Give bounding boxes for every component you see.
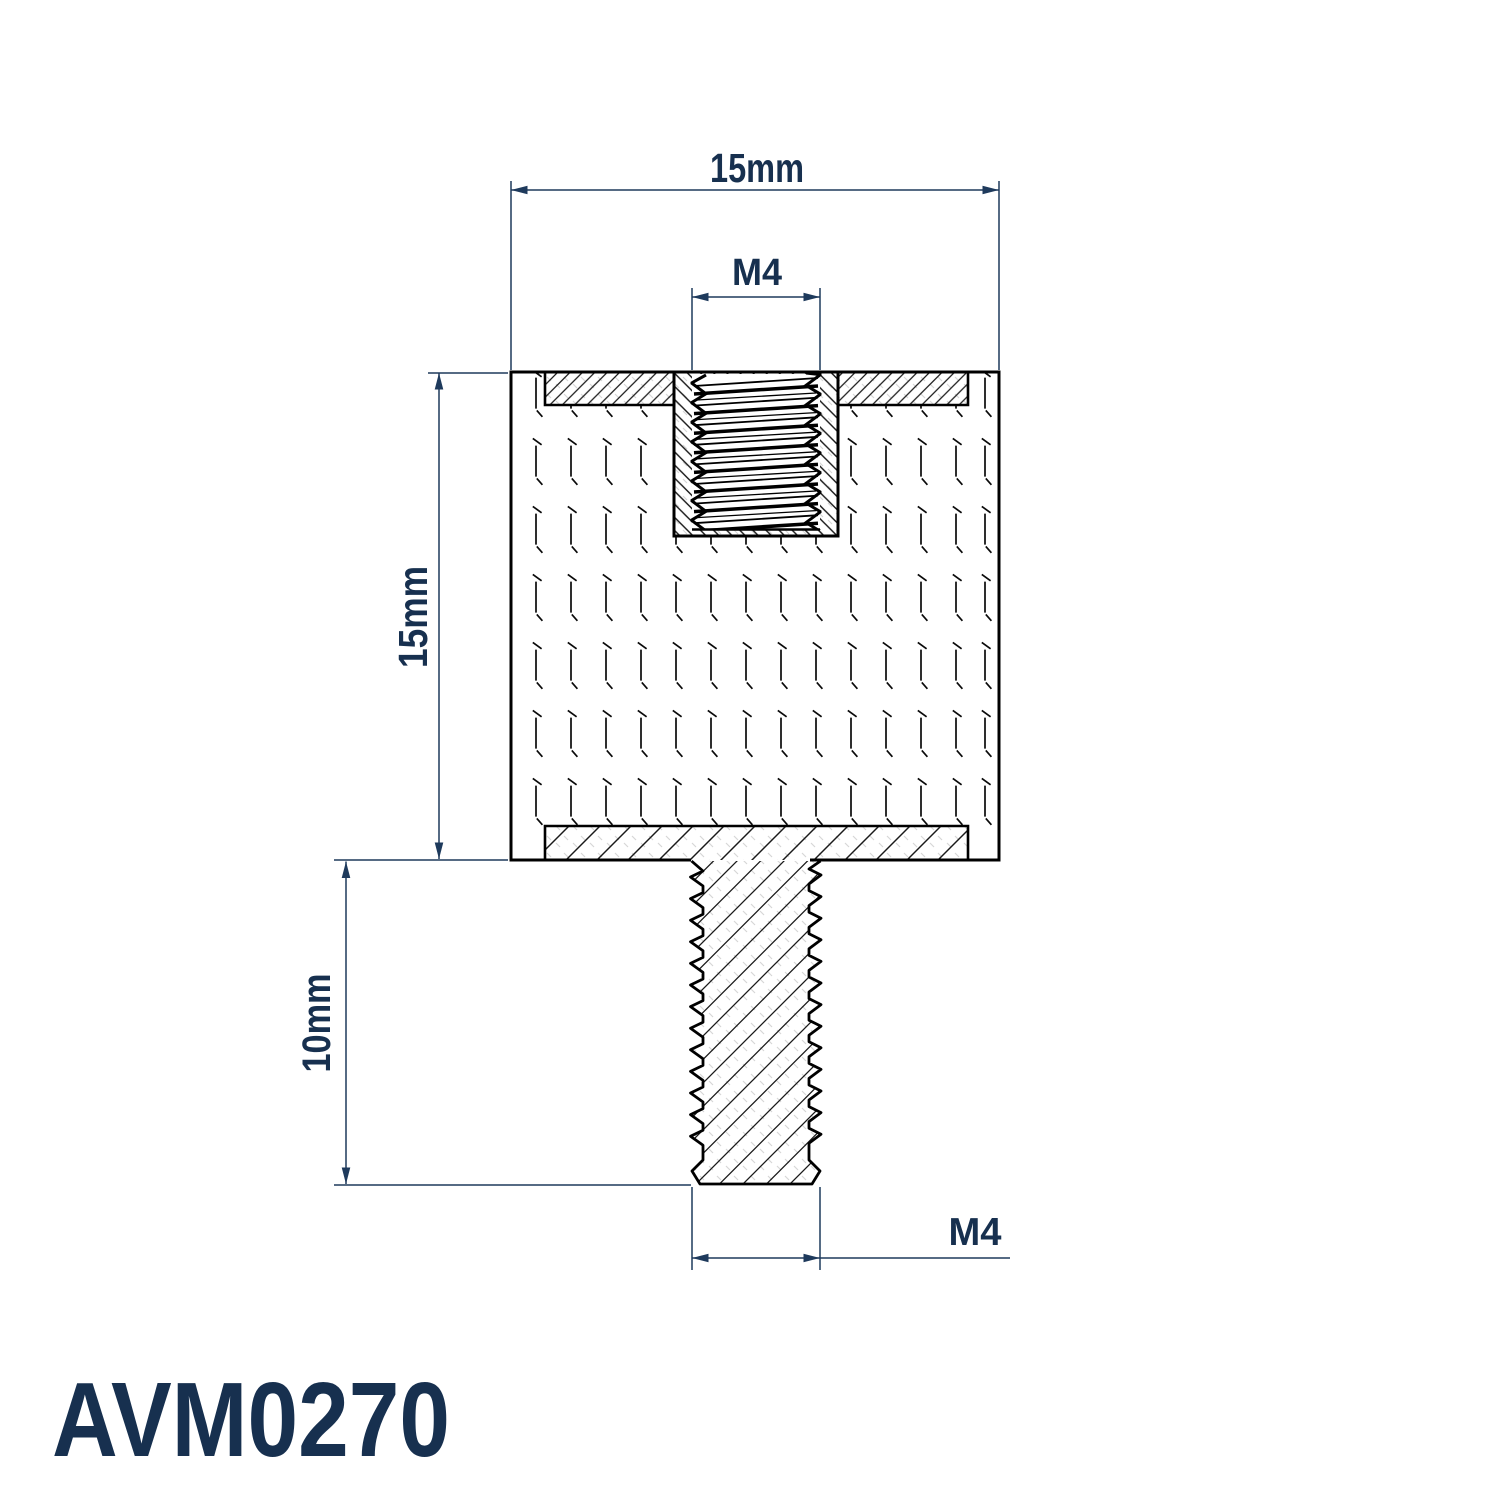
svg-text:M4: M4 [949,1211,1002,1254]
svg-text:M4: M4 [732,252,782,294]
svg-text:15mm: 15mm [390,566,436,668]
svg-text:AVM0270: AVM0270 [52,1361,450,1479]
svg-text:10mm: 10mm [295,974,339,1073]
svg-text:15mm: 15mm [710,145,804,191]
